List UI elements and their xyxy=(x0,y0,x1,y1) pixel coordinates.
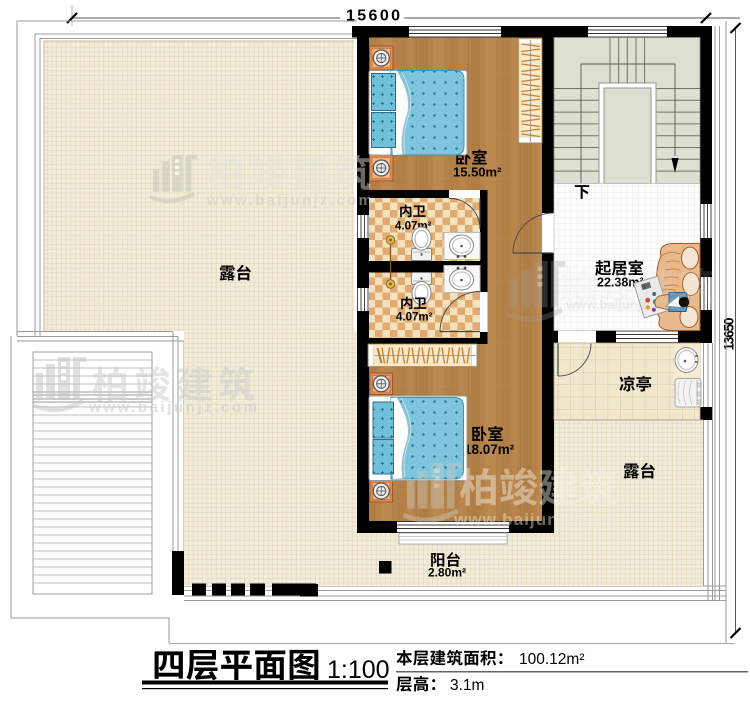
svg-text:1:100: 1:100 xyxy=(327,656,390,684)
svg-text:100.12m²: 100.12m² xyxy=(519,651,584,668)
svg-text:3.1m: 3.1m xyxy=(450,677,484,694)
svg-text:15.50m²: 15.50m² xyxy=(453,165,502,180)
svg-text:www.baijunjz.com: www.baijunjz.com xyxy=(565,297,678,312)
svg-text:15600: 15600 xyxy=(346,8,400,25)
svg-text:4.07m²: 4.07m² xyxy=(396,312,433,324)
svg-text:18.07m²: 18.07m² xyxy=(464,442,515,457)
svg-text:2.80m²: 2.80m² xyxy=(428,566,466,580)
svg-text:www.baijunjz.com: www.baijunjz.com xyxy=(453,510,617,529)
svg-text:13650: 13650 xyxy=(722,318,737,351)
